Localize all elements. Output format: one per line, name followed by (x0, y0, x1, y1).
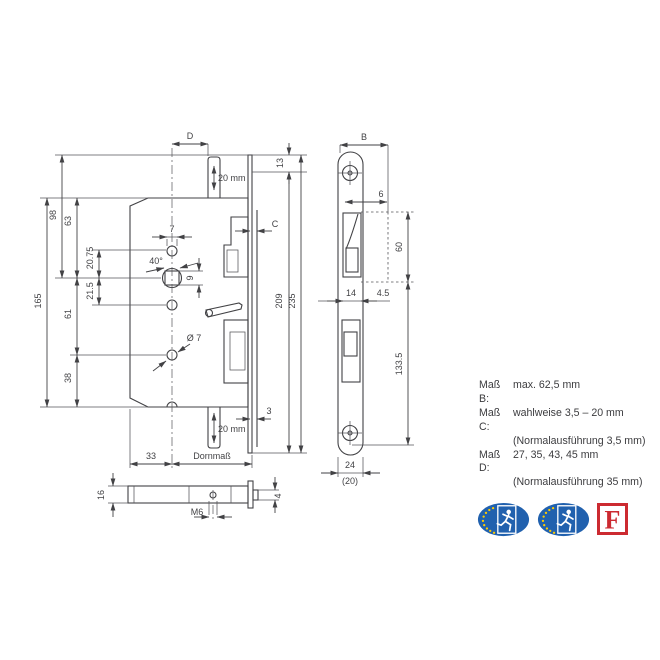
note-row: Maß C: wahlweise 3,5 – 20 mm (479, 407, 657, 435)
side-view: B 6 60 14 4.5 133.5 24 (20) (318, 132, 414, 486)
dim-9: 9 (185, 275, 195, 280)
note-row: Maß B: max. 62,5 mm (479, 379, 657, 407)
latch-bolt-inner (227, 250, 238, 272)
dim-215: 21.5 (85, 282, 95, 300)
deadbolt-inner (344, 332, 357, 356)
screw-hole-top (338, 161, 362, 185)
note-label: Maß B: (479, 379, 513, 407)
faceplate-lip (253, 490, 258, 500)
dim-24: 24 (345, 460, 355, 470)
dim-7: 7 (169, 224, 174, 234)
fire-rating-letter: F (605, 506, 621, 535)
note-row: Maß D: 27, 35, 43, 45 mm (479, 449, 657, 477)
note-label (479, 435, 513, 449)
dim-m6: M6 (191, 507, 204, 517)
fire-rating-badge: F (597, 503, 628, 535)
note-text: 27, 35, 43, 45 mm (513, 449, 657, 477)
lock-drawing: D 20 mm 13 98 63 165 61 38 20.75 21.5 7 (0, 0, 660, 660)
dim-slot-top: 20 mm (218, 173, 246, 183)
dim-14: 14 (346, 288, 356, 298)
note-row: (Normalausführung 3,5 mm) (479, 435, 657, 449)
eu-emergency-exit-badge (537, 501, 590, 538)
dim-165: 165 (33, 293, 43, 308)
dim-6: 6 (378, 189, 383, 199)
dim-209: 209 (274, 293, 284, 308)
eu-emergency-exit-badge (477, 501, 530, 538)
side-extension-lines (338, 145, 414, 477)
note-label (479, 476, 513, 490)
dim-1335: 133.5 (394, 353, 404, 376)
dim-dornmass: Dornmaß (193, 451, 231, 461)
dim-C: C (272, 219, 279, 229)
note-text: (Normalausführung 3,5 mm) (513, 435, 657, 449)
dim-2075: 20.75 (85, 247, 95, 270)
bottom-dimensions: 16 M6 4 (96, 473, 283, 517)
dim-dia7: Ø 7 (187, 333, 202, 343)
screw-hole-bottom (338, 421, 362, 445)
dim-20paren: (20) (342, 476, 358, 486)
dim-16: 16 (96, 490, 106, 500)
note-row: (Normalausführung 35 mm) (479, 476, 657, 490)
dim-60: 60 (394, 242, 404, 252)
dim-38: 38 (63, 373, 73, 383)
front-view: D 20 mm 13 98 63 165 61 38 20.75 21.5 7 (33, 131, 307, 470)
latch-inner (346, 248, 358, 272)
dim-slot-bottom: 20 mm (218, 424, 246, 434)
latch-bevel (346, 214, 358, 249)
dim-angle: 40° (149, 256, 163, 266)
certification-badges: F (477, 499, 637, 539)
dim-63: 63 (63, 216, 73, 226)
dim-235: 235 (287, 293, 297, 308)
note-text: max. 62,5 mm (513, 379, 657, 407)
case-bottom-profile (128, 486, 248, 503)
dead-bolt-inner (230, 332, 245, 370)
dead-bolt (224, 320, 248, 383)
faceplate-front (248, 155, 252, 453)
bottom-view: 16 M6 4 (96, 473, 283, 522)
dimension-notes: Maß B: max. 62,5 mm Maß C: wahlweise 3,5… (479, 379, 657, 490)
front-dimensions: D 20 mm 13 98 63 165 61 38 20.75 21.5 7 (33, 131, 301, 464)
dim-D: D (187, 131, 194, 141)
note-label: Maß C: (479, 407, 513, 435)
dim-45: 4.5 (377, 288, 390, 298)
faceplate-outline (338, 152, 363, 455)
note-label: Maß D: (479, 449, 513, 477)
dim-13: 13 (275, 158, 285, 168)
lock-case-outline (130, 198, 248, 407)
faceplate-section (248, 481, 253, 508)
dim-4: 4 (273, 493, 283, 498)
technical-drawing-canvas: D 20 mm 13 98 63 165 61 38 20.75 21.5 7 (0, 0, 660, 660)
dim-98: 98 (48, 210, 58, 220)
note-text: (Normalausführung 35 mm) (513, 476, 657, 490)
dim-B: B (361, 132, 367, 142)
latch-bolt (224, 217, 248, 277)
dim-33: 33 (146, 451, 156, 461)
dim-3: 3 (266, 406, 271, 416)
note-text: wahlweise 3,5 – 20 mm (513, 407, 657, 435)
dim-61: 61 (63, 309, 73, 319)
